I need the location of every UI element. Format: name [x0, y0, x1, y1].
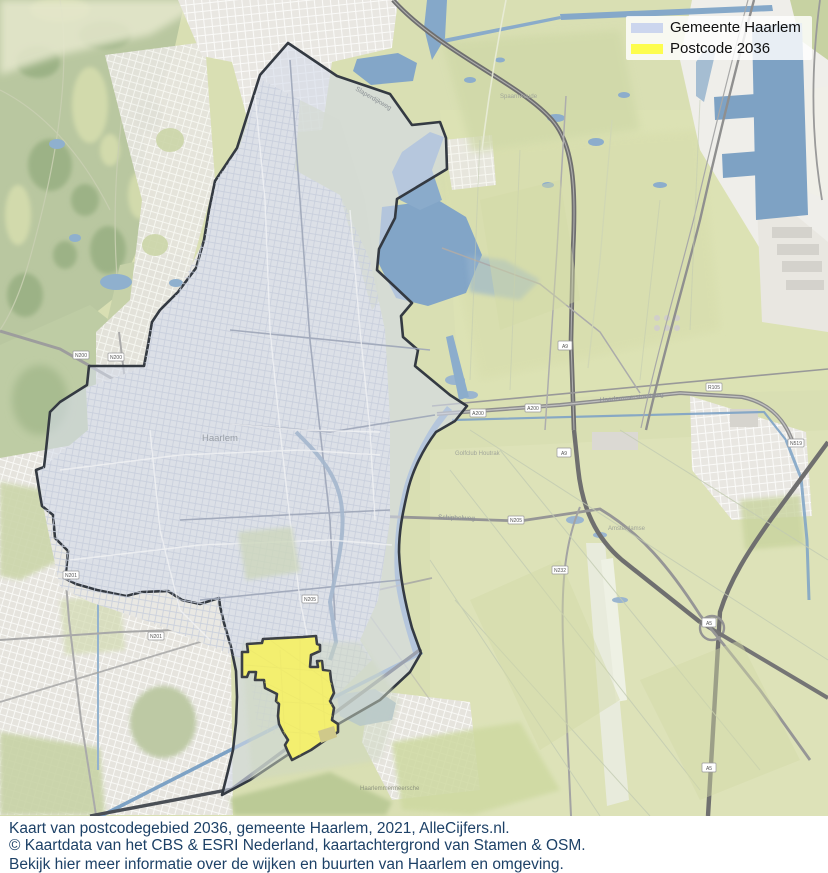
svg-text:N200: N200: [110, 355, 122, 361]
svg-text:Haarlemmermeersche: Haarlemmermeersche: [360, 786, 420, 792]
svg-text:R105: R105: [708, 385, 720, 391]
svg-text:N200: N200: [75, 353, 87, 359]
svg-text:Postcode 2036: Postcode 2036: [670, 40, 770, 57]
svg-text:A5: A5: [706, 766, 712, 772]
svg-text:A200: A200: [472, 411, 484, 417]
svg-text:N201: N201: [150, 634, 162, 640]
svg-text:A5: A5: [706, 621, 712, 627]
svg-text:Schipholweg: Schipholweg: [438, 514, 475, 522]
svg-text:Spaarnwoude: Spaarnwoude: [500, 94, 538, 100]
svg-text:N232: N232: [554, 568, 566, 574]
svg-text:N201: N201: [65, 573, 77, 579]
svg-text:Haarlem: Haarlem: [202, 433, 238, 444]
svg-text:A200: A200: [527, 406, 539, 412]
svg-text:N205: N205: [510, 518, 522, 524]
svg-text:Amsterdamse: Amsterdamse: [608, 526, 646, 532]
svg-text:N519: N519: [790, 441, 802, 447]
svg-text:N205: N205: [304, 597, 316, 603]
svg-text:A9: A9: [561, 451, 567, 457]
svg-text:Gemeente Haarlem: Gemeente Haarlem: [670, 19, 801, 36]
svg-text:Golfclub Houtrak: Golfclub Houtrak: [455, 451, 501, 457]
svg-text:A9: A9: [562, 344, 568, 350]
